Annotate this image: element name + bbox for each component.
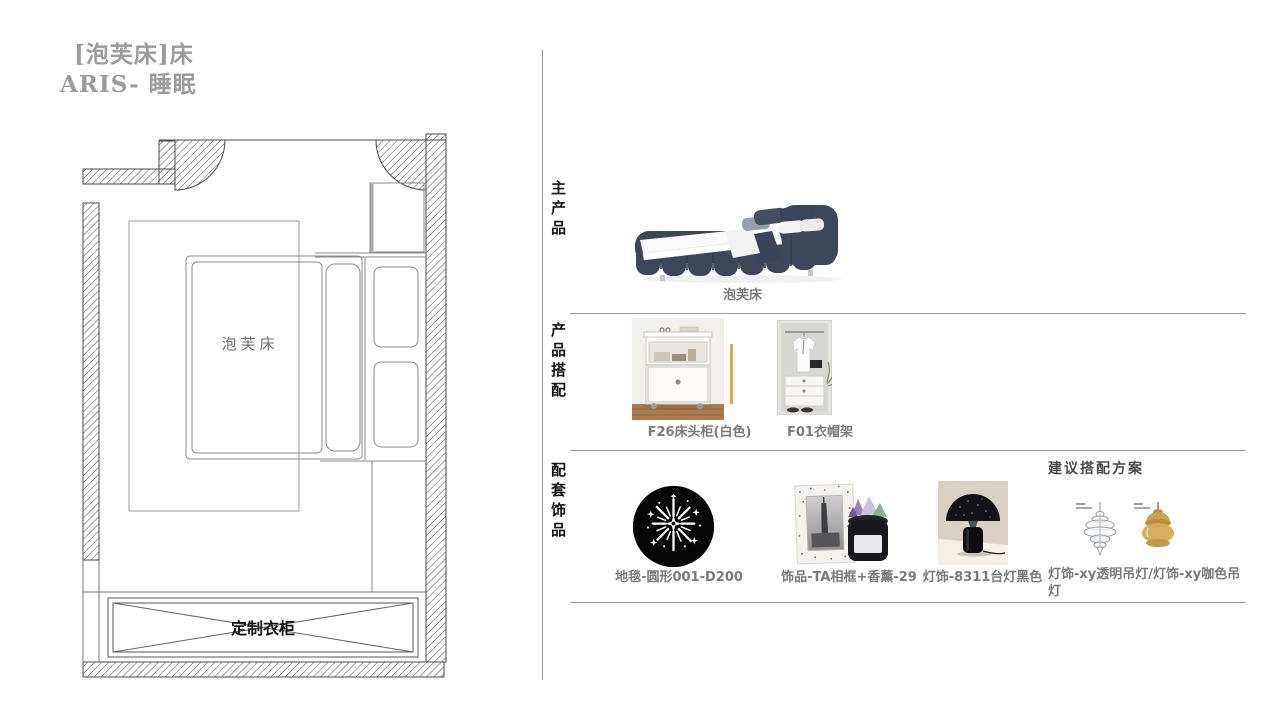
plan-bed-label: 泡芙床 — [221, 335, 278, 353]
note-suggested-plan: 建议搭配方案 — [1048, 458, 1144, 478]
section-label-accessories: 配套饰品 — [548, 462, 569, 542]
plan-room-lines — [83, 560, 426, 662]
table-lamp-image — [938, 481, 1008, 565]
page-title-line1: [泡芙床]床 — [60, 40, 197, 70]
section-divider-1 — [570, 313, 1246, 314]
coatrack-image — [777, 320, 832, 415]
carpet-image — [631, 484, 716, 569]
plan-walls — [83, 134, 446, 677]
section-label-main-product: 主产品 — [548, 180, 569, 240]
plan-bed — [186, 256, 362, 459]
bed-product-image — [630, 183, 855, 285]
page-title: [泡芙床]床 ARIS- 睡眠 — [60, 40, 197, 100]
item-label-frame-aroma: 饰品-TA相框+香薰-29 — [769, 569, 929, 586]
frame-aroma-image — [792, 483, 892, 567]
plan-carpet — [129, 221, 299, 511]
nightstand-image — [632, 318, 724, 420]
main-divider — [542, 50, 543, 680]
section-divider-3 — [570, 602, 1246, 603]
pendant-clear — [1084, 502, 1116, 555]
pendant-lamps-image — [1070, 500, 1188, 562]
accent-line — [730, 344, 733, 404]
item-label-table-lamp: 灯饰-8311台灯黑色 — [920, 569, 1045, 586]
main-product-name: 泡芙床 — [630, 287, 855, 304]
item-label-carpet: 地毯-圆形001-D200 — [596, 569, 762, 586]
item-label-coatrack: F01衣帽架 — [757, 424, 883, 441]
floor-plan: 泡芙床 定制衣柜 — [75, 130, 460, 685]
door-arc-left — [175, 140, 225, 190]
plan-wardrobe-label: 定制衣柜 — [230, 619, 295, 638]
pendant-annotation-left — [1076, 503, 1092, 509]
page-title-line2: ARIS- 睡眠 — [60, 70, 197, 100]
section-divider-2 — [570, 450, 1246, 451]
item-label-pendants: 灯饰-xy透明吊灯/灯饰-xy咖色吊灯 — [1048, 566, 1248, 600]
section-label-product-match: 产品搭配 — [548, 322, 569, 402]
plan-closet-column — [315, 183, 426, 592]
pendant-annotation-right — [1134, 503, 1150, 509]
catalog-slide: [泡芙床]床 ARIS- 睡眠 — [0, 0, 1280, 720]
